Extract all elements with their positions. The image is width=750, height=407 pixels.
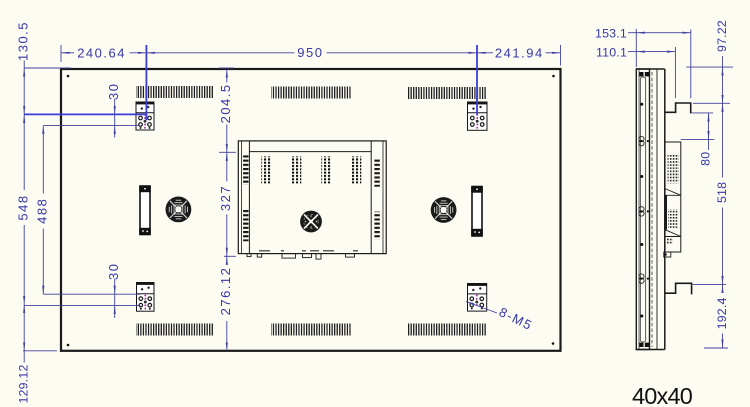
svg-text:240.64: 240.64 [77, 46, 126, 61]
svg-text:204.5: 204.5 [218, 83, 233, 123]
svg-text:153.1: 153.1 [595, 27, 627, 41]
svg-text:40x40: 40x40 [632, 383, 693, 407]
svg-text:276.12: 276.12 [218, 267, 233, 316]
svg-text:129.12: 129.12 [16, 364, 30, 403]
svg-text:548: 548 [16, 194, 31, 220]
svg-text:80: 80 [699, 152, 713, 166]
svg-text:30: 30 [106, 83, 121, 100]
svg-text:110.1: 110.1 [596, 45, 627, 59]
svg-text:30: 30 [106, 263, 121, 280]
svg-text:950: 950 [297, 45, 323, 60]
svg-text:327: 327 [218, 185, 233, 211]
svg-text:518: 518 [715, 182, 729, 203]
svg-text:241.94: 241.94 [495, 46, 544, 61]
svg-text:192.4: 192.4 [715, 297, 729, 329]
svg-text:130.5: 130.5 [16, 21, 31, 61]
svg-text:488: 488 [35, 198, 50, 224]
svg-text:97.22: 97.22 [715, 20, 729, 52]
